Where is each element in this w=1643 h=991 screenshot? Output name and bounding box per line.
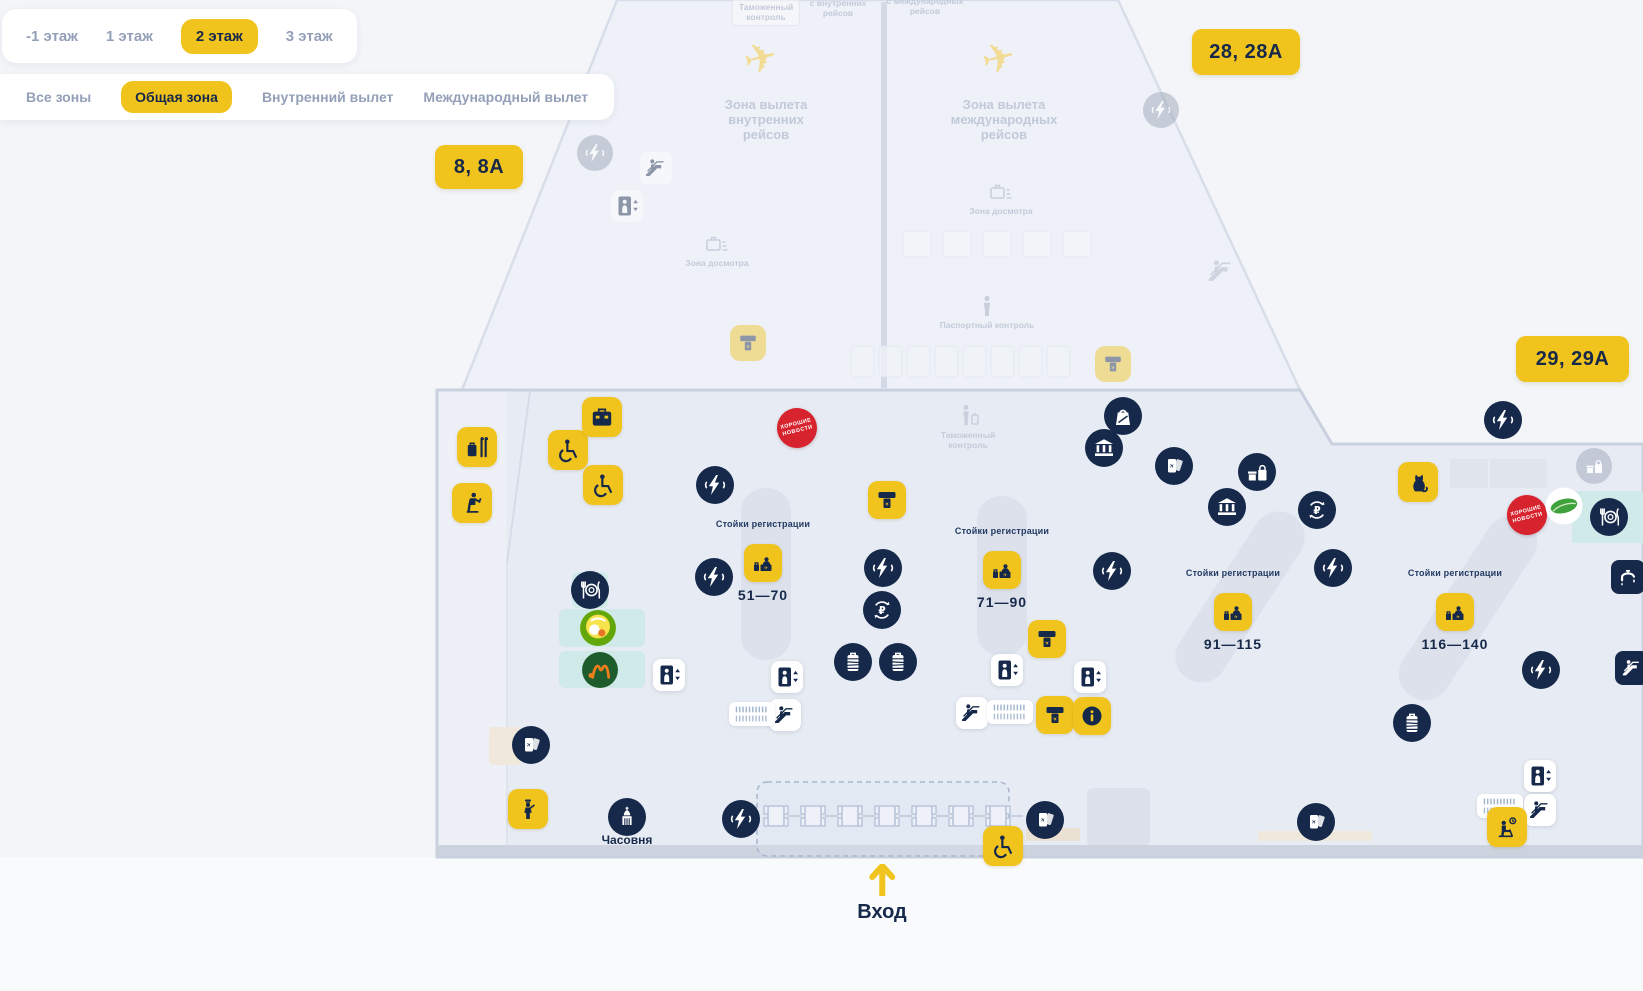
checkin-range-label: 71—90	[977, 594, 1027, 610]
flight-tickets-icon[interactable]: ✈	[1155, 447, 1193, 485]
gate-label-2: 29, 29A	[1516, 336, 1629, 382]
bank-icon[interactable]	[1085, 429, 1123, 467]
charging-station-icon[interactable]	[1484, 401, 1522, 439]
information-icon[interactable]	[1073, 697, 1111, 735]
checkin-counters-label: Стойки регистрации	[716, 519, 810, 529]
escalator-icon[interactable]	[1524, 794, 1556, 826]
checkin-counters-label: Стойки регистрации	[955, 526, 1049, 536]
label-passport-control: Паспортный контроль	[940, 320, 1035, 330]
floor-tab-2[interactable]: 2 этаж	[181, 19, 258, 54]
label-customs-control-center: Таможенныйконтроль	[941, 430, 995, 450]
stairs-icon[interactable]	[987, 700, 1033, 724]
checkin-range-label: 91—115	[1204, 636, 1262, 652]
svg-text:✈: ✈	[764, 566, 768, 572]
charging-station-icon[interactable]	[722, 800, 760, 838]
shoe-shine-icon[interactable]	[452, 483, 492, 523]
zone-international-departures: Зона вылетамеждународныхрейсов	[951, 97, 1058, 142]
pharmacy-logo[interactable]	[1545, 487, 1583, 525]
gate-label-0: 8, 8A	[435, 145, 523, 189]
charging-station-icon[interactable]	[1093, 552, 1131, 590]
elevator-icon[interactable]	[991, 654, 1023, 686]
floor-tab-3[interactable]: 3 этаж	[286, 28, 333, 45]
floor-selector: -1 этаж1 этаж2 этаж3 этаж	[2, 9, 357, 63]
charging-station-icon[interactable]	[695, 558, 733, 596]
elevator-icon[interactable]	[653, 659, 685, 691]
checkin-counters-label: Стойки регистрации	[1408, 568, 1502, 578]
escalator-faded-icon	[1206, 256, 1236, 286]
drinking-water-icon[interactable]	[1611, 560, 1643, 594]
entrance-marker: Вход	[857, 864, 906, 924]
boarding-pass-printer-faded-icon: ✈	[1095, 346, 1131, 382]
boarding-pass-printer-faded-icon: ✈	[730, 325, 766, 361]
label-screening-zone-right-glyph-icon	[988, 178, 1014, 204]
zone-tab-2[interactable]: Внутренний вылет	[262, 89, 393, 105]
charging-station-faded-icon[interactable]	[1143, 92, 1179, 128]
luggage-storage-icon[interactable]	[582, 397, 622, 437]
terminal-floorplan	[0, 0, 1643, 991]
charging-station-icon[interactable]	[864, 549, 902, 587]
oversized-baggage-icon[interactable]	[457, 427, 497, 467]
floor-tab-0[interactable]: -1 этаж	[26, 28, 78, 45]
label-screening-zone-right: Зона досмотра	[969, 206, 1032, 216]
checkin-range-label: 116—140	[1422, 636, 1489, 652]
zone-selector: Все зоныОбщая зонаВнутренний вылетМеждун…	[0, 74, 614, 120]
currency-exchange-icon[interactable]: ₽	[863, 591, 901, 629]
moving-walkway-icon[interactable]	[1615, 651, 1643, 685]
flight-tickets-icon[interactable]: ✈	[1026, 801, 1064, 839]
waiting-lounge-icon[interactable]	[1487, 807, 1527, 847]
checkin-desk-icon[interactable]: ✈	[1436, 593, 1474, 631]
gate-label-1: 28, 28A	[1192, 29, 1300, 75]
flight-tickets-icon[interactable]: ✈	[1297, 803, 1335, 841]
label-customs-control-top: Таможенныйконтроль	[732, 0, 800, 26]
zone-tab-1[interactable]: Общая зона	[121, 81, 232, 113]
restaurant-icon[interactable]	[571, 571, 609, 609]
charging-station-faded-icon[interactable]	[577, 135, 613, 171]
svg-text:✈: ✈	[1234, 615, 1238, 621]
wheelchair-assistance-icon[interactable]	[583, 465, 623, 505]
escalator-icon[interactable]	[956, 697, 988, 729]
entrance-label: Вход	[857, 901, 906, 924]
checkin-desk-icon[interactable]: ✈	[983, 551, 1021, 589]
elevator-icon[interactable]	[771, 661, 803, 693]
wheelchair-assistance-icon[interactable]	[983, 826, 1023, 866]
label-screening-zone-left-glyph-icon	[704, 230, 730, 256]
restaurant-icon[interactable]	[1590, 498, 1628, 536]
label-from-international-flights: с международныхрейсов	[887, 0, 964, 16]
charging-station-icon[interactable]	[1522, 651, 1560, 689]
checkin-desk-icon[interactable]: ✈	[1214, 593, 1252, 631]
entrance-arrow-icon	[869, 864, 895, 896]
elevator-faded-icon	[611, 190, 643, 222]
bank-icon[interactable]	[1208, 488, 1246, 526]
pet-relief-room-icon[interactable]	[1398, 462, 1438, 502]
label-passport-control-glyph-icon	[974, 292, 1000, 318]
label-screening-zone-left: Зона досмотра	[685, 258, 748, 268]
boarding-pass-printer-icon[interactable]: ✈	[1036, 696, 1074, 734]
gift-shop-faded-icon[interactable]	[1576, 448, 1612, 484]
chapel-icon[interactable]	[608, 798, 646, 836]
zone-domestic-departures: Зона вылетавнутреннихрейсов	[725, 97, 808, 142]
escalator-faded-icon	[640, 152, 672, 184]
charging-station-icon[interactable]	[696, 466, 734, 504]
wheelchair-assistance-icon[interactable]	[548, 430, 588, 470]
gift-shop-icon[interactable]	[1238, 453, 1276, 491]
label-customs-control-center-glyph-icon	[955, 402, 981, 428]
svg-text:✈: ✈	[1003, 573, 1007, 579]
airport-terminal-map: -1 этаж1 этаж2 этаж3 этаж Все зоныОбщая …	[0, 0, 1643, 991]
boarding-pass-printer-icon[interactable]: ✈	[1028, 620, 1066, 658]
cafe-mu-mu-logo[interactable]	[581, 651, 619, 689]
baggage-wrapping-icon[interactable]	[834, 643, 872, 681]
zone-tab-0[interactable]: Все зоны	[26, 89, 91, 105]
svg-text:₽: ₽	[1313, 505, 1320, 517]
label-from-domestic-flights: с внутреннихрейсов	[810, 0, 867, 18]
cafe-kroshka-kartoshka-logo[interactable]	[579, 609, 617, 647]
svg-text:₽: ₽	[878, 605, 885, 617]
checkin-desk-icon[interactable]: ✈	[744, 544, 782, 582]
svg-text:✈: ✈	[1456, 615, 1460, 621]
shop-icon[interactable]	[1104, 397, 1142, 435]
floor-tab-1[interactable]: 1 этаж	[106, 28, 153, 45]
elevator-icon[interactable]	[1074, 661, 1106, 693]
baggage-wrapping-icon[interactable]	[1393, 704, 1431, 742]
charging-station-icon[interactable]	[1314, 549, 1352, 587]
boarding-pass-printer-icon[interactable]: ✈	[868, 481, 906, 519]
baggage-wrapping-icon[interactable]	[879, 643, 917, 681]
zone-tab-3[interactable]: Международный вылет	[423, 89, 588, 105]
currency-exchange-icon[interactable]: ₽	[1298, 491, 1336, 529]
police-post-icon[interactable]	[508, 789, 548, 829]
checkin-counters-label: Стойки регистрации	[1186, 568, 1280, 578]
checkin-range-label: 51—70	[738, 587, 788, 603]
stairs-icon[interactable]	[729, 702, 775, 726]
elevator-icon[interactable]	[1524, 760, 1556, 792]
flight-tickets-icon[interactable]: ✈	[512, 726, 550, 764]
